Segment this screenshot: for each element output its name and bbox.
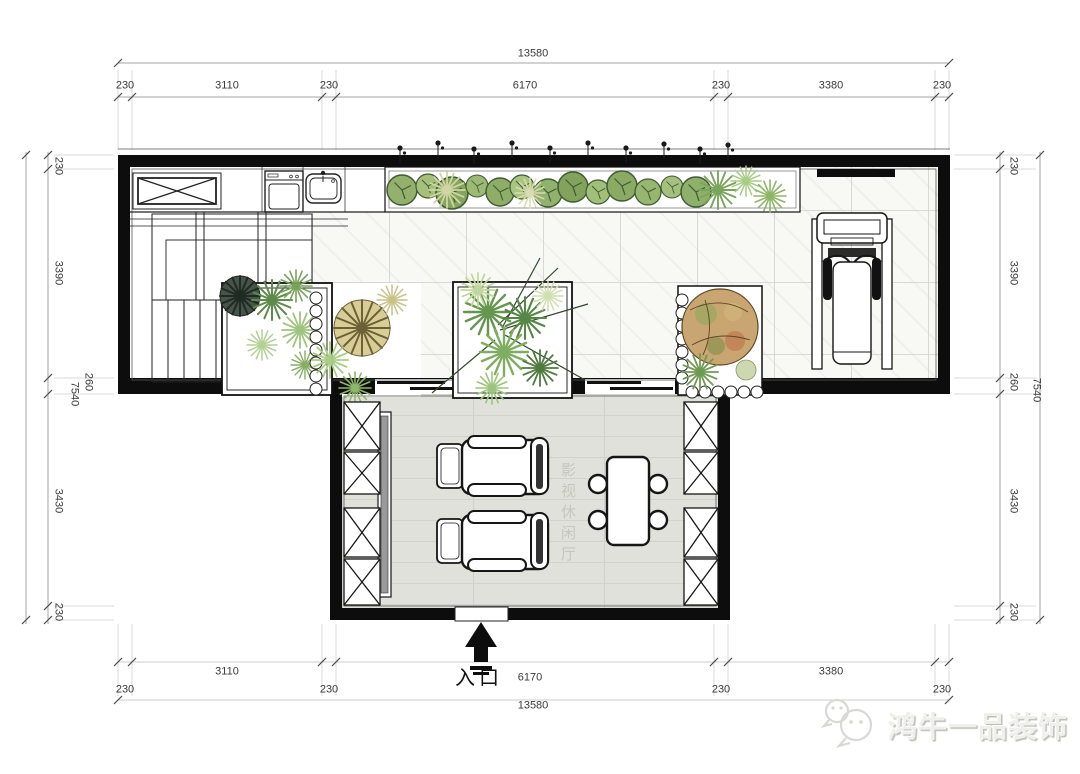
dim-bottom-seg: 230 (320, 685, 338, 696)
dim-right-seg: 3430 (1008, 489, 1019, 513)
dim-top-seg: 230 (712, 81, 730, 92)
dim-top-seg: 3380 (819, 81, 843, 92)
dim-top-seg: 230 (320, 81, 338, 92)
wall-top (118, 155, 950, 167)
sliding-door-opening-right (585, 379, 675, 394)
dim-right-seg: 260 (1008, 373, 1019, 391)
dim-top-overall: 13580 (518, 49, 549, 60)
dim-left-seg: 3430 (53, 489, 64, 513)
dim-left-seg: 230 (53, 603, 64, 621)
dim-left-seg: 260 (83, 373, 94, 391)
floor-plan: 13580 230 3110 230 6170 230 3380 230 230… (0, 0, 1080, 774)
dim-bottom-seg: 3110 (215, 667, 239, 678)
wall-right-lower (718, 394, 730, 620)
dim-bottom-seg: 230 (712, 685, 730, 696)
entrance-opening (455, 607, 508, 621)
room-label: 影视休闲厅 (557, 462, 578, 567)
kitchen-counter-zone (130, 167, 385, 212)
dim-bottom-seg: 230 (116, 685, 134, 696)
wall-bottom (330, 608, 730, 620)
dim-right-seg: 230 (1008, 603, 1019, 621)
watermark-text: 鸿牛一品装饰 (888, 704, 1068, 746)
dim-right-seg: 230 (1008, 157, 1019, 175)
living-room-floor (342, 394, 718, 608)
wall-middle-band (118, 378, 950, 394)
dim-top-seg: 3110 (215, 81, 239, 92)
dim-right-overall: 7540 (1031, 378, 1042, 402)
dim-bottom-overall: 13580 (518, 701, 549, 712)
dim-top-seg: 230 (116, 81, 134, 92)
staircase-zone (130, 212, 312, 382)
dim-bottom-seg: 230 (933, 685, 951, 696)
wall-left-upper (118, 155, 130, 394)
dim-right-seg: 3390 (1008, 261, 1019, 285)
dim-bottom-seg: 3380 (819, 667, 843, 678)
sliding-door-opening-left (375, 379, 487, 394)
dim-left-seg: 230 (53, 157, 64, 175)
dim-left-seg: 3390 (53, 261, 64, 285)
wechat-icon (824, 700, 871, 746)
dim-top-seg: 230 (933, 81, 951, 92)
wall-right-upper (938, 155, 950, 394)
wall-left-lower (330, 394, 342, 620)
dim-left-overall: 7540 (69, 382, 80, 406)
dim-top-seg: 6170 (513, 81, 537, 92)
dim-bottom-seg: 6170 (518, 673, 542, 684)
entrance-label: 入口 (455, 662, 503, 691)
